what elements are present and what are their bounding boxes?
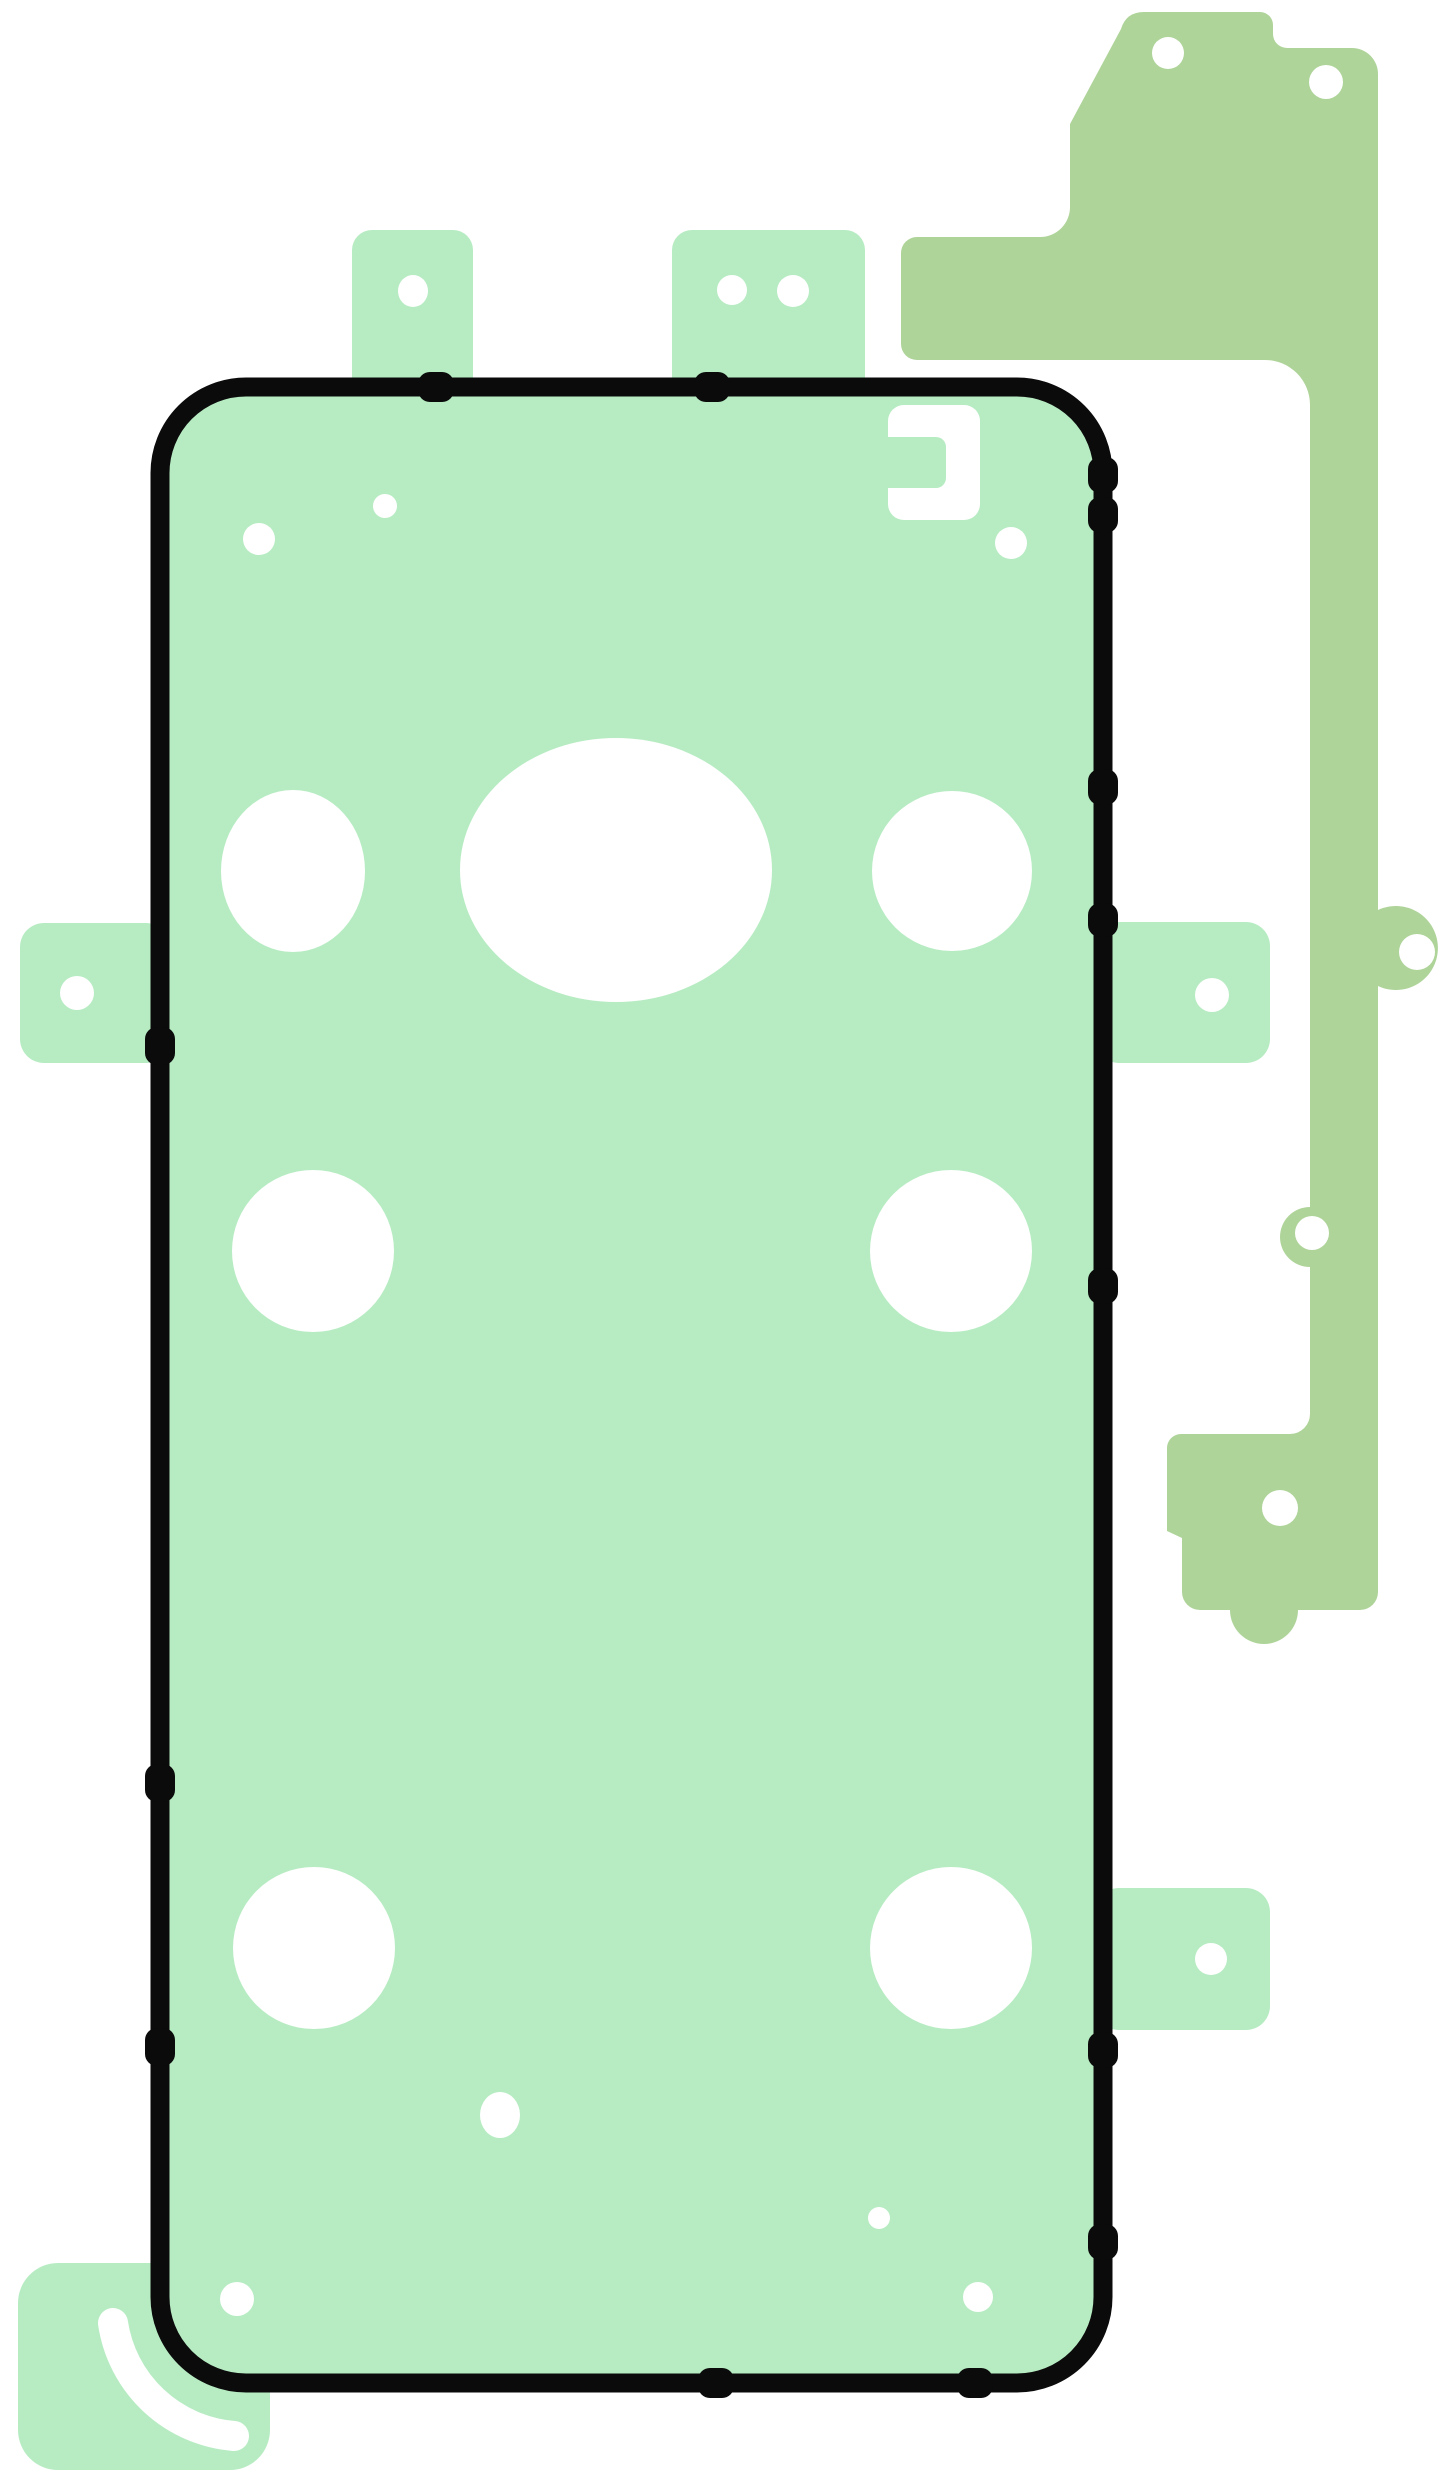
camera-hole-right: [872, 791, 1032, 951]
cutout-lower-left: [233, 1867, 395, 2029]
tab-hole-top-right-2: [777, 275, 809, 307]
pull-tab-right-upper: [1095, 922, 1270, 1063]
strip-hole-side-bump: [1399, 934, 1435, 970]
edge-nub-left-1: [145, 1027, 175, 1065]
tab-hole-right-lower: [1195, 1943, 1227, 1975]
edge-nub-left-3: [145, 2028, 175, 2066]
edge-nub-top-1: [418, 372, 454, 402]
edge-nub-right-5: [1088, 1268, 1118, 1304]
tab-hole-top-right-1: [717, 275, 747, 305]
bottom-hole-left: [220, 2282, 254, 2316]
edge-nub-bottom-1: [698, 2368, 734, 2398]
phone-back-adhesive-template: [0, 0, 1445, 2473]
edge-nub-right-3: [1088, 769, 1118, 805]
tab-hole-top-left: [398, 275, 428, 307]
cutout-mid-right: [870, 1170, 1032, 1332]
adhesive-diagram-svg: [0, 0, 1445, 2473]
camera-hole-center: [460, 738, 772, 1002]
edge-nub-right-7: [1088, 2224, 1118, 2260]
small-oval-cutout: [480, 2092, 520, 2138]
edge-nub-right-2: [1088, 497, 1118, 533]
edge-nub-left-2: [145, 1764, 175, 1802]
tab-hole-left-side: [60, 976, 94, 1010]
pull-tab-top-left: [352, 230, 473, 400]
cutout-mid-left: [232, 1170, 394, 1332]
alignment-hole-top-1: [243, 523, 275, 555]
adhesive-sheet-body: [154, 381, 1109, 2389]
flash-hole: [995, 527, 1027, 559]
tiny-dot-cutout: [868, 2207, 890, 2229]
edge-nub-bottom-2: [957, 2368, 993, 2398]
edge-nub-right-4: [1088, 903, 1118, 937]
bracket-cutout-gap: [860, 437, 946, 488]
camera-hole-left: [221, 790, 365, 952]
edge-nub-right-6: [1088, 2032, 1118, 2068]
strip-hole-left-bump: [1295, 1216, 1329, 1250]
tab-hole-right-upper: [1195, 978, 1229, 1012]
edge-nub-right-1: [1088, 457, 1118, 493]
strip-hole-foot: [1262, 1490, 1298, 1526]
cutout-lower-right: [870, 1867, 1032, 2029]
strip-hole-top-right: [1309, 65, 1343, 99]
bottom-hole-right: [963, 2282, 993, 2312]
edge-nub-top-2: [694, 372, 730, 402]
alignment-hole-top-2: [373, 494, 397, 518]
pull-tab-right-lower: [1095, 1888, 1270, 2030]
strip-hole-top-left: [1152, 37, 1184, 69]
